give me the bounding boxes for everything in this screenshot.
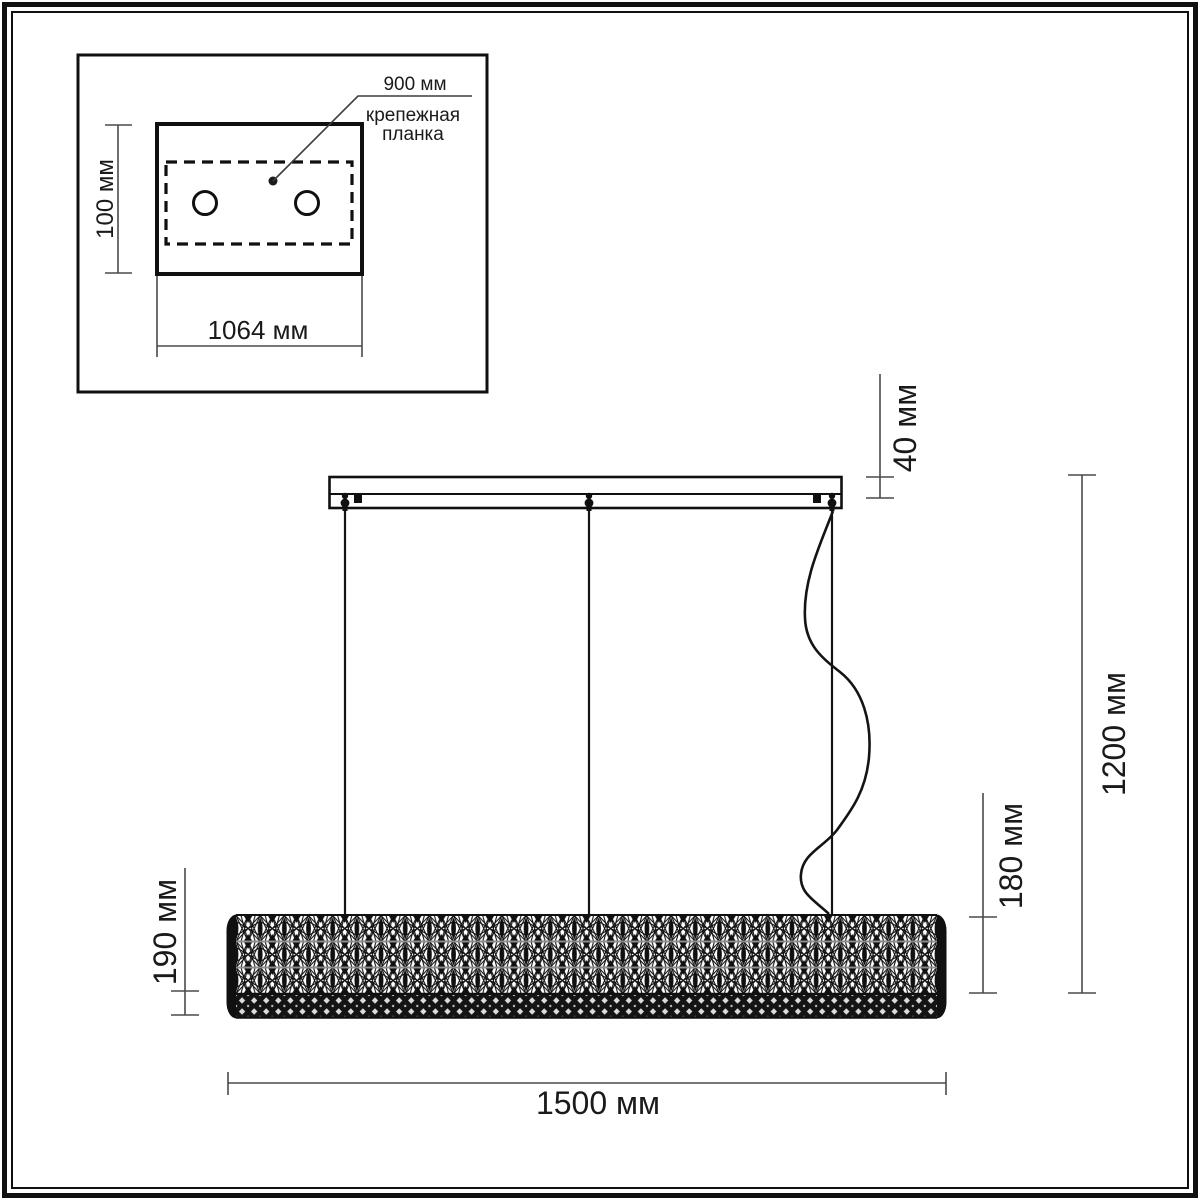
pendant-side-view: 40 мм 1200 мм 180 мм 190 мм [147, 374, 1132, 1121]
canopy-screw-left [354, 495, 362, 503]
ceiling-plate-outline [157, 124, 362, 274]
fixture-length-label: 1500 мм [536, 1085, 660, 1121]
ceiling-canopy [330, 477, 842, 511]
drawing-canvas: 900 мм крепежная планка 100 мм 1064 мм [0, 0, 1200, 1200]
canopy-height-label: 40 мм [887, 384, 923, 472]
crystal-fixture [227, 915, 947, 1019]
bottom-bead-band [236, 995, 937, 1017]
mounting-bar-length-label: 900 мм [383, 74, 446, 95]
technical-drawing: 900 мм крепежная планка 100 мм 1064 мм [0, 0, 1200, 1200]
dimension-overall-drop [1068, 475, 1096, 993]
mounting-hole-left [194, 192, 217, 215]
mounting-bar-caption-line1: крепежная [366, 105, 460, 126]
inset-top-view: 900 мм крепежная планка 100 мм 1064 мм [78, 55, 487, 392]
plate-height-label: 100 мм [92, 159, 119, 239]
body-height-left-label: 190 мм [147, 879, 183, 985]
mounting-hole-right [296, 192, 319, 215]
suspension-wires [345, 509, 832, 916]
crystal-lattice-rows [236, 916, 937, 994]
overall-drop-label: 1200 мм [1096, 672, 1132, 796]
body-height-right-label: 180 мм [993, 803, 1029, 909]
plate-width-label: 1064 мм [208, 315, 309, 345]
mounting-bar-caption-line2: планка [382, 124, 444, 145]
canopy-screw-right [813, 495, 821, 503]
power-cord [801, 511, 870, 914]
